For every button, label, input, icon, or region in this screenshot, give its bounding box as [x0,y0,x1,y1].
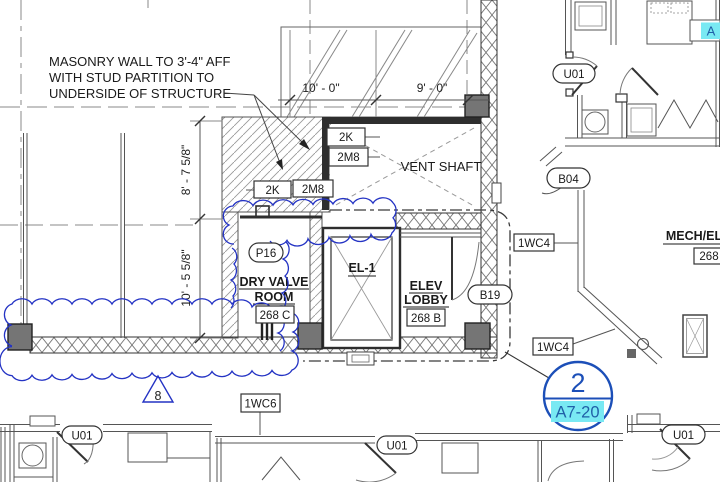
dim-top-left: 10' - 0" [302,81,339,95]
wall-tag-1wc4-lower: 1WC4 [537,342,570,354]
wall-tag-2k-lower: 2K [265,185,279,197]
detail-callout: 2 A7-20 [544,362,612,430]
callout-detail-number: 2 [570,368,585,398]
room-number-dry-valve: 268 C [260,310,291,322]
upper-floor-hatch-zone [281,27,481,117]
left-partition-walls [24,133,125,338]
door-tag-u01-bottom-left: U01 [71,431,92,443]
door-tag-u01-bottom-right: U01 [673,430,694,442]
bottom-units [0,414,720,482]
door-tag-u01-bottom-middle: U01 [386,441,407,453]
room-label-dry-valve-1: DRY VALVE [240,275,309,289]
elevator-shaft: EL-1 [323,228,400,348]
note-line-1: MASONRY WALL TO 3'-4" AFF [49,54,231,69]
door-tag-u01-top-right: U01 [563,69,584,81]
wall-tag-2m8-upper: 2M8 [337,152,359,164]
dim-left-upper: 8' - 7 5/8" [179,145,193,196]
note-line-3: UNDERSIDE OF STRUCTURE [49,86,231,101]
dim-top-right: 9' - 0" [417,81,448,95]
room-label-vent-shaft: VENT SHAFT [401,159,482,174]
callout-sheet-number: A7-20 [555,404,599,422]
wall-tag-2k-upper: 2K [339,132,353,144]
door-tag-b19: B19 [480,290,500,302]
room-label-elevator: EL-1 [348,261,375,275]
room-number-lobby: 268 B [411,313,441,325]
wall-tag-1wc4-upper: 1WC4 [518,238,551,250]
door-tag-b04: B04 [558,174,579,186]
highlighted-key-tag: A [690,20,720,41]
room-number-mech: 268 [699,251,718,263]
room-label-dry-valve-2: ROOM [255,290,294,304]
floor-plan-drawing: VENT SHAFT EL-1 ELEV LOBBY DRY VALVE ROO… [0,0,720,482]
room-label-lobby-1: ELEV [410,279,443,293]
wall-tag-1wc6: 1WC6 [245,399,277,411]
masonry-wall-hatch [222,117,330,338]
room-label-lobby-2: LOBBY [404,293,448,307]
door-tag-p16: P16 [256,248,276,260]
note-line-2: WITH STUD PARTITION TO [49,70,214,85]
floor-plan-sheet: VENT SHAFT EL-1 ELEV LOBBY DRY VALVE ROO… [0,0,720,482]
revision-delta-number: 8 [155,389,162,403]
dim-left-lower: 10' - 5 5/8" [179,249,193,306]
key-tag-label: A [707,24,716,39]
room-label-mech: MECH/EL [666,229,720,243]
wall-tag-2m8-lower: 2M8 [302,184,324,196]
